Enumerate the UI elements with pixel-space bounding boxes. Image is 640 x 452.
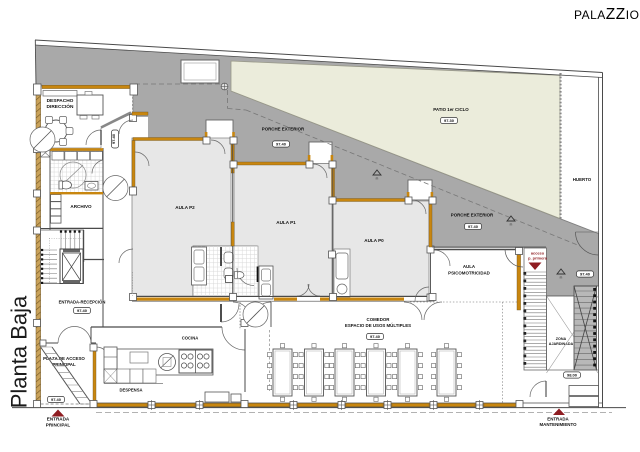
svg-text:PATIO 1er CICLO: PATIO 1er CICLO: [433, 107, 469, 112]
svg-text:MANTENIMIENTO: MANTENIMIENTO: [540, 422, 578, 427]
svg-text:97.30: 97.30: [444, 118, 455, 123]
svg-text:AULA P2: AULA P2: [175, 205, 195, 210]
svg-text:PORCHE EXTERIOR: PORCHE EXTERIOR: [262, 127, 305, 132]
svg-text:AJARDINADA: AJARDINADA: [549, 342, 574, 346]
svg-text:PORCHE EXTERIOR: PORCHE EXTERIOR: [451, 213, 494, 218]
svg-text:97.40: 97.40: [77, 308, 88, 313]
svg-text:ENTRADA-RECEPCIÓN: ENTRADA-RECEPCIÓN: [59, 300, 106, 305]
svg-text:AULA P1: AULA P1: [276, 220, 296, 225]
svg-text:ENTRADA: ENTRADA: [47, 417, 70, 422]
svg-text:97.40: 97.40: [580, 272, 591, 277]
svg-text:ENTRADA: ENTRADA: [547, 417, 569, 422]
svg-text:AULA P0: AULA P0: [364, 238, 384, 243]
svg-text:DESPENSA: DESPENSA: [119, 388, 142, 393]
svg-text:p. primera: p. primera: [528, 256, 548, 261]
svg-text:ESPACIO DE USOS MÚLTIPLES: ESPACIO DE USOS MÚLTIPLES: [345, 323, 411, 328]
svg-text:m: m: [510, 223, 513, 227]
svg-text:Planta Baja: Planta Baja: [7, 295, 32, 408]
svg-text:97.40: 97.40: [111, 133, 116, 144]
svg-text:m: m: [560, 276, 563, 280]
svg-text:ARCHIVO: ARCHIVO: [70, 204, 92, 209]
svg-text:98.00: 98.00: [567, 373, 578, 378]
svg-text:m: m: [376, 177, 379, 181]
svg-text:AULA: AULA: [463, 264, 476, 269]
svg-text:PSICOMOTRICIDAD: PSICOMOTRICIDAD: [448, 271, 490, 276]
svg-text:COCINA: COCINA: [182, 336, 199, 341]
svg-text:PRINCIPAL: PRINCIPAL: [46, 423, 71, 428]
svg-text:COMEDOR: COMEDOR: [367, 317, 391, 322]
svg-text:97.40: 97.40: [51, 397, 62, 402]
svg-text:97.40: 97.40: [468, 224, 479, 229]
svg-text:PALAZZIO: PALAZZIO: [574, 6, 639, 23]
svg-text:DESPACHO: DESPACHO: [47, 98, 74, 104]
svg-text:HUERTO: HUERTO: [573, 177, 592, 182]
svg-text:97.40: 97.40: [370, 334, 381, 339]
svg-text:97.40: 97.40: [276, 142, 287, 147]
svg-text:ZONA: ZONA: [556, 337, 567, 341]
